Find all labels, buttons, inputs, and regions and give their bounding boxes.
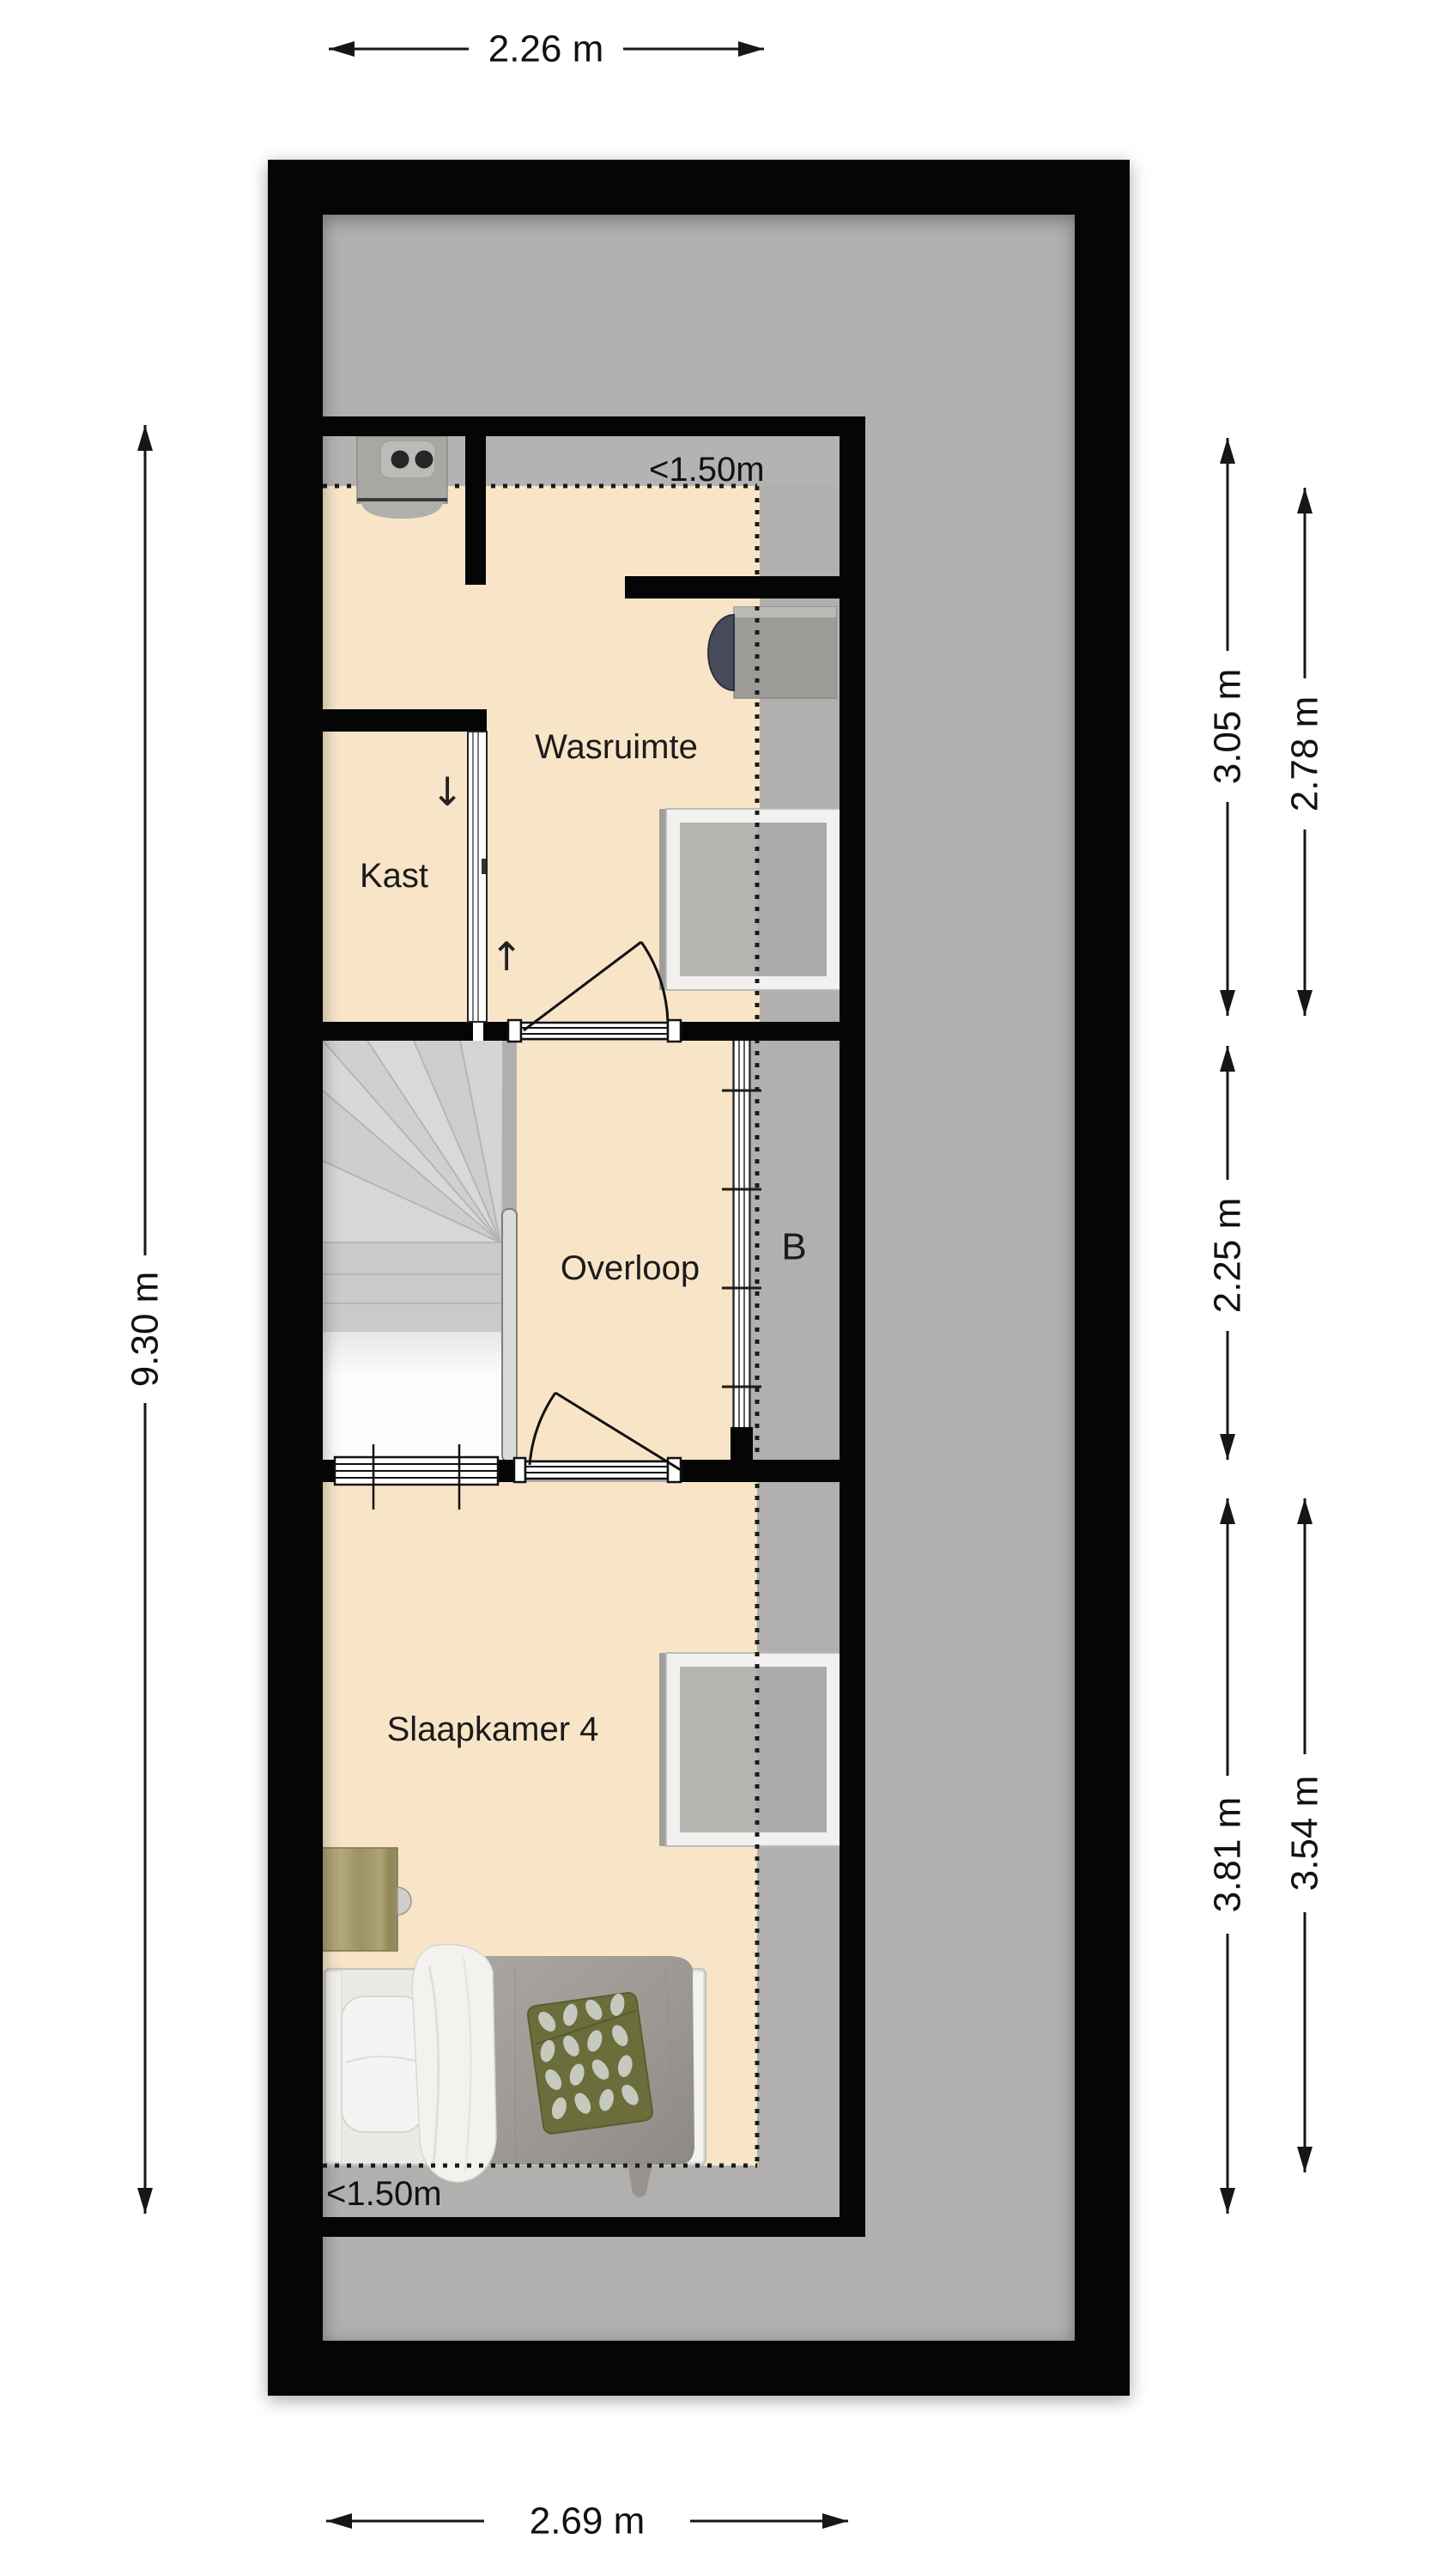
- dimension-right-3-54: 3.54 m: [1284, 1498, 1326, 2172]
- label-wasruimte: Wasruimte: [535, 728, 698, 766]
- bed: [324, 1944, 706, 2196]
- stairs-up-arrow-icon: ↑: [490, 933, 524, 980]
- sliding-door-handle: [482, 859, 486, 874]
- label-kast: Kast: [360, 857, 428, 895]
- railing-post: [731, 1427, 753, 1461]
- skylight-window-top: [659, 809, 840, 990]
- stair-handrail: [502, 1209, 517, 1461]
- stairs-down-arrow-icon: ↓: [431, 769, 464, 815]
- dimension-right-2-78: 2.78 m: [1284, 488, 1326, 1016]
- dimension-bottom: 2.69 m: [326, 2500, 848, 2543]
- floorplan-drawing: Wasruimte Kast Overloop B Slaapkamer 4 <…: [0, 0, 1449, 2576]
- washing-machine: [357, 436, 447, 519]
- stair-straight-steps: [323, 1242, 502, 1332]
- wasruimte-stub-wall: [465, 436, 486, 585]
- east-stub-wall: [625, 576, 840, 598]
- label-b: B: [781, 1226, 806, 1268]
- leaf-pattern-pillow: [526, 1990, 653, 2135]
- dimension-right-2-25: 2.25 m: [1207, 1046, 1249, 1460]
- bed-duvet: [412, 1944, 496, 2182]
- bed-headboard: [326, 1971, 342, 2162]
- dim-3-54-label: 3.54 m: [1284, 1776, 1326, 1892]
- washer-knob: [391, 451, 409, 469]
- dim-3-81-label: 3.81 m: [1207, 1797, 1249, 1913]
- dim-left-label: 9.30 m: [124, 1272, 167, 1388]
- label-headroom-top: <1.50m: [649, 451, 765, 489]
- bed-pillow: [342, 1996, 424, 2132]
- dimension-left: 9.30 m: [124, 425, 167, 2214]
- dim-3-05-label: 3.05 m: [1207, 669, 1249, 785]
- rooms-east-wall: [840, 416, 865, 2237]
- floorplan-page: Wasruimte Kast Overloop B Slaapkamer 4 <…: [0, 0, 1449, 2576]
- dimension-right-3-81: 3.81 m: [1207, 1498, 1249, 2214]
- dimension-right-3-05: 3.05 m: [1207, 438, 1249, 1016]
- dim-bottom-label: 2.69 m: [530, 2500, 646, 2543]
- door-hinge-block: [508, 1020, 521, 1042]
- dim-top-label: 2.26 m: [488, 28, 604, 70]
- rooms-south-wall: [323, 2217, 865, 2237]
- boiler-unit: [708, 607, 836, 698]
- label-headroom-bottom: <1.50m: [326, 2175, 442, 2213]
- stair-landing: [323, 1332, 502, 1461]
- desk: [322, 1848, 411, 1951]
- dimension-top: 2.26 m: [329, 28, 764, 70]
- dim-2-78-label: 2.78 m: [1284, 696, 1326, 812]
- washer-knob: [415, 451, 433, 469]
- rooms-north-wall: [323, 416, 865, 436]
- label-overloop: Overloop: [561, 1249, 700, 1287]
- dim-2-25-label: 2.25 m: [1207, 1198, 1249, 1314]
- sliding-door-kast: [468, 732, 487, 1022]
- staircase: [323, 1041, 517, 1461]
- skylight-window-bottom: [659, 1653, 840, 1846]
- kast-north-wall: [323, 709, 487, 732]
- label-slaapkamer-4: Slaapkamer 4: [387, 1710, 599, 1748]
